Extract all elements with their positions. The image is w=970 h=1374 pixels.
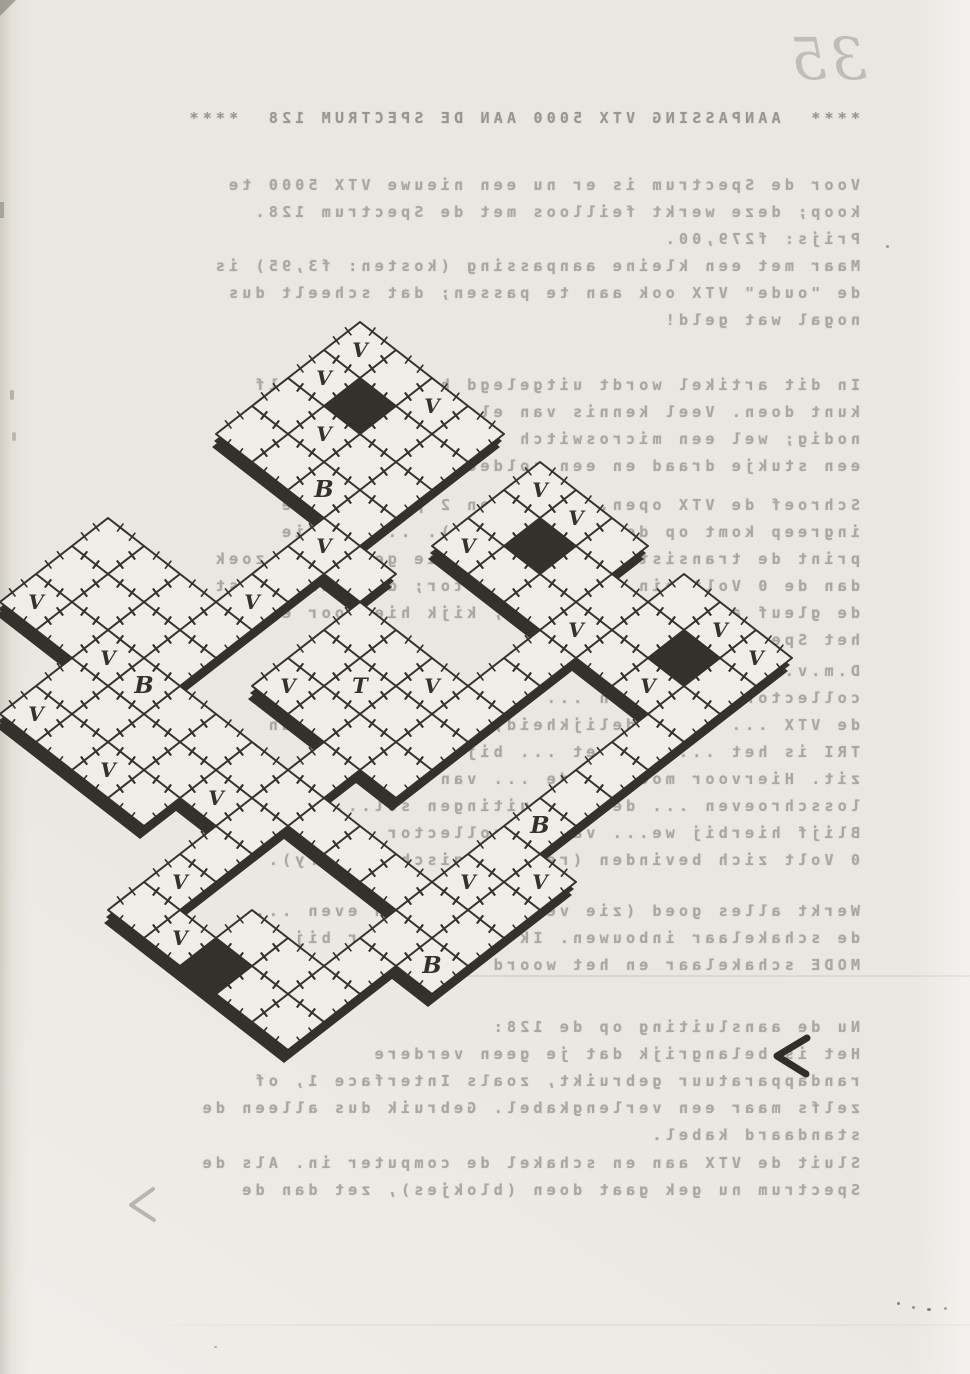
maze-label-T: T bbox=[352, 673, 369, 698]
maze-label-V: V bbox=[460, 870, 478, 894]
maze-label-V: V bbox=[316, 366, 334, 390]
maze-label-V: V bbox=[640, 674, 658, 698]
maze-label-V: V bbox=[100, 646, 118, 670]
maze-label-V: V bbox=[352, 338, 370, 362]
maze-label-V: V bbox=[568, 506, 586, 530]
paper-speck bbox=[886, 245, 889, 248]
paper-speck bbox=[944, 1307, 947, 1310]
paper-speck bbox=[214, 1346, 217, 1348]
maze-label-V: V bbox=[568, 618, 586, 642]
maze-label-B: B bbox=[529, 812, 549, 839]
maze-label-B: B bbox=[421, 952, 441, 979]
handdrawn-arrow-left-icon bbox=[765, 1028, 825, 1088]
maze-label-V: V bbox=[316, 422, 334, 446]
maze-diagram: VVVVVVVVVVVVVVVVVVVVVVVVBBBBT bbox=[0, 0, 970, 1374]
maze-label-B: B bbox=[313, 476, 333, 503]
maze-label-V: V bbox=[244, 590, 262, 614]
maze-label-B: B bbox=[133, 672, 153, 699]
maze-label-V: V bbox=[748, 646, 766, 670]
maze-label-V: V bbox=[532, 870, 550, 894]
maze-label-V: V bbox=[172, 870, 190, 894]
maze-label-V: V bbox=[172, 926, 190, 950]
paper-edge-mark bbox=[12, 432, 16, 441]
maze-cells bbox=[0, 322, 792, 1050]
maze-label-V: V bbox=[28, 590, 46, 614]
paper-edge-mark bbox=[10, 390, 14, 400]
maze-label-V: V bbox=[100, 758, 118, 782]
maze-label-V: V bbox=[712, 618, 730, 642]
maze-label-V: V bbox=[208, 786, 226, 810]
maze-label-V: V bbox=[280, 674, 298, 698]
paper-speck bbox=[912, 1306, 915, 1309]
maze-label-V: V bbox=[424, 674, 442, 698]
maze-label-V: V bbox=[316, 534, 334, 558]
paper-speck bbox=[897, 1302, 900, 1305]
maze-label-V: V bbox=[532, 478, 550, 502]
maze-label-V: V bbox=[424, 394, 442, 418]
faint-arrow-left-icon bbox=[122, 1184, 172, 1234]
maze-label-V: V bbox=[460, 534, 478, 558]
maze-label-V: V bbox=[28, 702, 46, 726]
scanned-page: 35 **** AANPASSING VTX 5000 AAN DE SPECT… bbox=[0, 0, 970, 1374]
paper-speck bbox=[927, 1308, 931, 1311]
